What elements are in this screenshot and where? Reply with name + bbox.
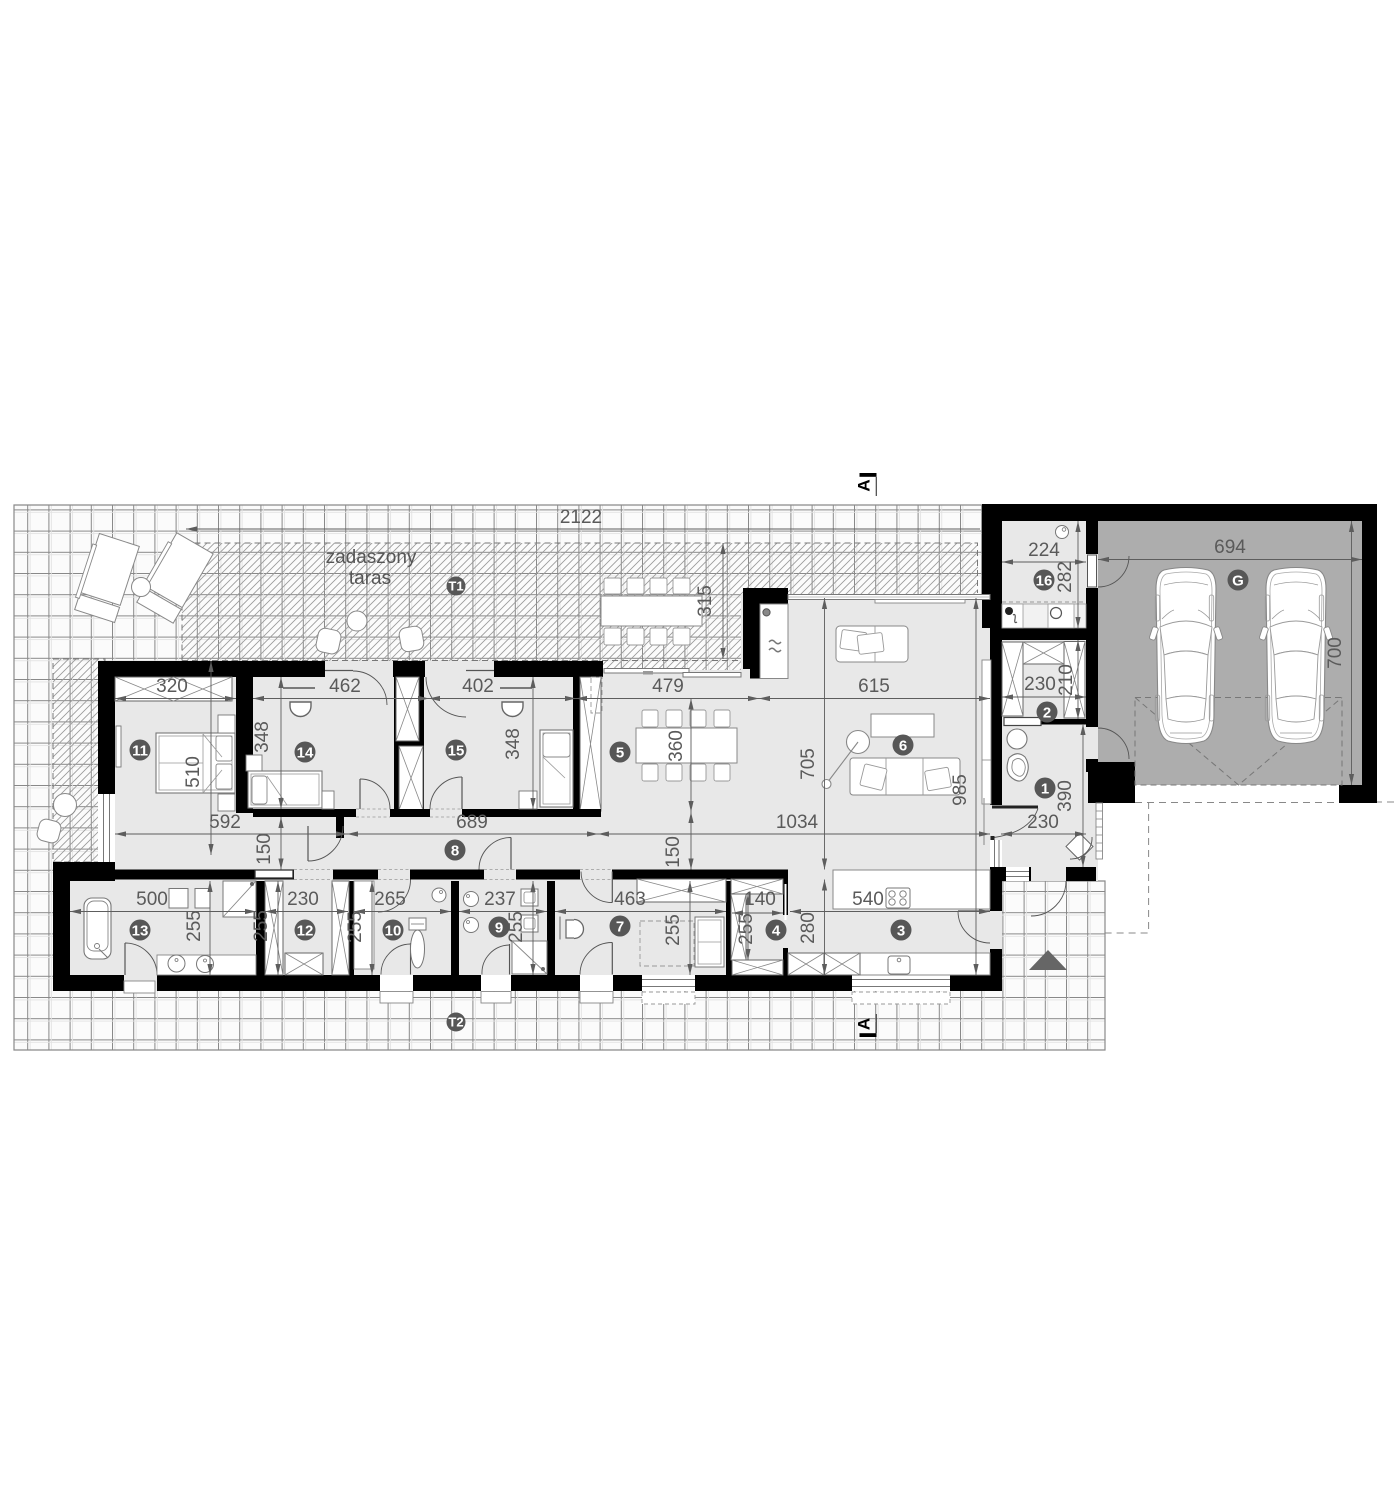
svg-text:14: 14 [297,744,314,761]
svg-text:2: 2 [1043,704,1051,721]
svg-text:224: 224 [1028,540,1060,561]
svg-text:G: G [1232,572,1244,589]
svg-text:463: 463 [614,889,646,910]
svg-text:255: 255 [251,910,272,942]
svg-text:705: 705 [798,748,819,780]
svg-text:9: 9 [495,919,503,936]
svg-text:4: 4 [772,922,781,939]
svg-text:6: 6 [899,737,907,754]
svg-text:16: 16 [1036,572,1053,589]
svg-text:A: A [855,479,874,491]
svg-text:462: 462 [329,676,361,697]
svg-text:A: A [855,1018,874,1030]
svg-text:694: 694 [1214,537,1246,558]
svg-text:985: 985 [950,774,971,806]
svg-text:T2: T2 [448,1015,463,1030]
svg-text:348: 348 [503,728,524,760]
svg-text:592: 592 [209,812,241,833]
svg-text:237: 237 [484,889,516,910]
svg-text:402: 402 [462,676,494,697]
svg-text:615: 615 [858,676,890,697]
svg-text:3: 3 [897,922,905,939]
svg-text:315: 315 [695,585,716,617]
svg-text:230: 230 [1027,812,1059,833]
svg-text:150: 150 [254,833,275,865]
svg-text:5: 5 [616,744,624,761]
svg-text:7: 7 [616,918,624,935]
svg-text:zadaszony: zadaszony [326,547,417,568]
svg-text:T1: T1 [448,579,463,594]
svg-text:540: 540 [852,889,884,910]
svg-text:510: 510 [183,756,204,788]
svg-text:700: 700 [1325,637,1346,669]
svg-text:280: 280 [798,912,819,944]
svg-text:210: 210 [1056,664,1077,696]
svg-text:348: 348 [252,721,273,753]
svg-text:230: 230 [287,889,319,910]
svg-text:360: 360 [666,730,687,762]
svg-text:255: 255 [345,911,366,943]
svg-text:390: 390 [1055,780,1076,812]
svg-text:13: 13 [132,922,149,939]
svg-text:taras: taras [349,568,391,589]
svg-text:230: 230 [1024,674,1056,695]
svg-text:265: 265 [374,889,406,910]
svg-text:255: 255 [184,910,205,942]
svg-text:10: 10 [385,922,402,939]
svg-text:255: 255 [663,914,684,946]
svg-text:8: 8 [451,842,459,859]
svg-text:11: 11 [132,742,148,759]
svg-text:479: 479 [652,676,684,697]
svg-text:500: 500 [136,889,168,910]
svg-text:150: 150 [663,836,684,868]
svg-text:689: 689 [456,812,488,833]
svg-text:320: 320 [156,676,188,697]
svg-text:255: 255 [736,913,757,945]
svg-text:12: 12 [297,922,314,939]
svg-text:2122: 2122 [560,507,602,528]
svg-text:1034: 1034 [776,812,819,833]
svg-text:1: 1 [1041,780,1049,797]
svg-text:282: 282 [1055,561,1076,593]
svg-text:15: 15 [448,742,465,759]
